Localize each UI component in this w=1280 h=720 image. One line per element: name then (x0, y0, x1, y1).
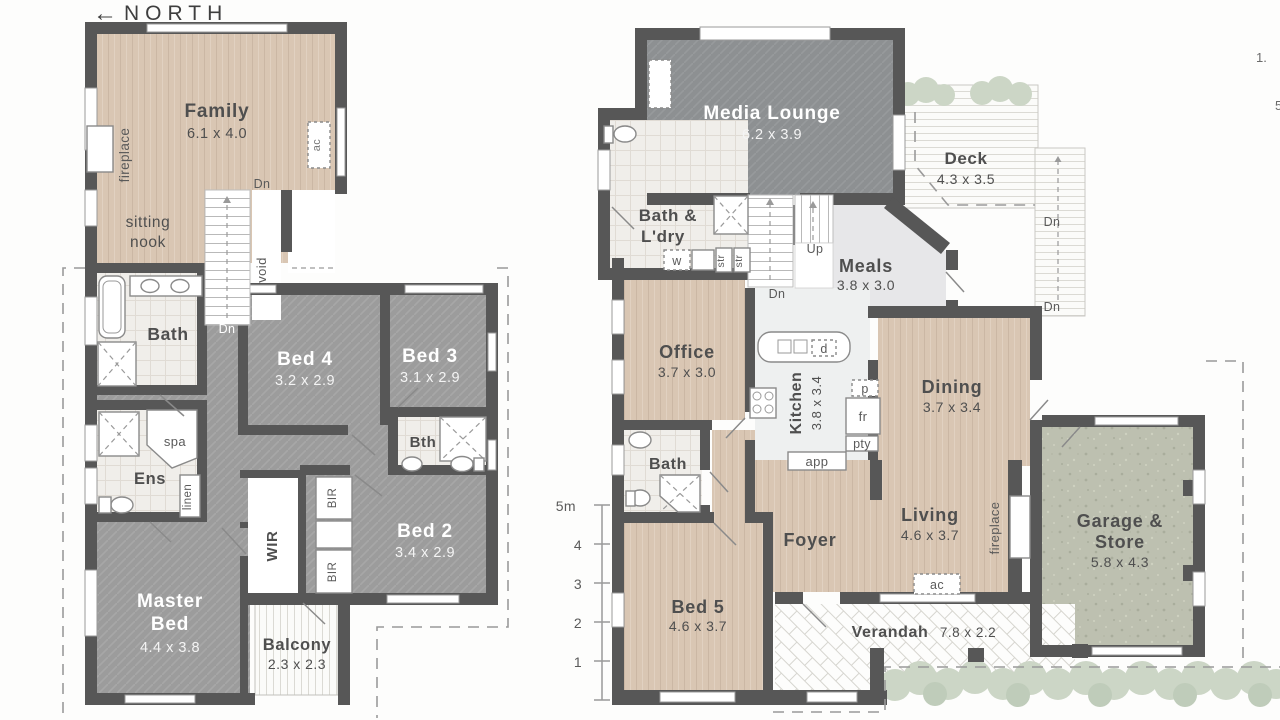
north-label: NORTH (124, 2, 228, 25)
label-dishwasher: d (820, 342, 827, 356)
margin-note-1: 1. (1256, 50, 1267, 65)
label-ac-upper: ac (311, 139, 323, 152)
room-dims-meals: 3.8 x 3.0 (837, 277, 895, 293)
stairs-up (795, 195, 833, 243)
toilet-tank (604, 126, 613, 143)
room-label-bth: Bth (410, 434, 437, 451)
room-label-family: Family (185, 101, 250, 122)
label-bir-top: BIR (327, 488, 339, 508)
label-spa: spa (164, 434, 187, 449)
room-label-foyer: Foyer (783, 530, 836, 550)
label-dn-bottom: Dn (219, 322, 236, 336)
sink-icon (629, 432, 651, 448)
fireplace-ground (1010, 496, 1030, 558)
label-ac-living: ac (930, 578, 944, 592)
north-arrow-icon: ← (93, 0, 117, 27)
room-dims-master: 4.4 x 3.8 (140, 640, 200, 656)
label-void: void (254, 257, 269, 282)
label-fireplace-ground: fireplace (987, 502, 1002, 555)
room-label-bed4: Bed 4 (277, 349, 333, 370)
north-indicator: ← NORTH (93, 0, 228, 27)
toilet-tank (99, 497, 111, 513)
room-label-master-1: Master (137, 591, 203, 612)
label-str-2: str (733, 254, 745, 267)
label-washer: w (671, 254, 682, 268)
room-label-meals: Meals (839, 256, 893, 276)
room-label-bed5: Bed 5 (671, 597, 724, 617)
room-dims-office: 3.7 x 3.0 (658, 364, 716, 380)
room-label-office: Office (659, 342, 715, 362)
sink-icon (402, 457, 422, 471)
room-label-media: Media Lounge (703, 103, 840, 124)
room-label-deck: Deck (944, 149, 987, 168)
sink-icon (141, 280, 159, 293)
cooktop-icon (750, 388, 776, 418)
built-in-robe (316, 521, 352, 548)
label-fireplace-upper: fireplace (117, 128, 132, 183)
toilet-tank (626, 491, 635, 506)
room-dims-verandah: 7.8 x 2.2 (940, 625, 996, 640)
scale-tick-3: 3 (574, 576, 582, 592)
label-wir: WIR (264, 531, 281, 562)
label-dn-ground: Dn (769, 287, 786, 301)
room-dims-kitchen: 3.8 x 3.4 (809, 376, 824, 430)
scale-tick-4: 4 (574, 537, 582, 553)
toilet-icon (451, 457, 473, 472)
room-label-garage-2: Store (1095, 532, 1145, 552)
label-bir-bottom: BIR (327, 562, 339, 582)
room-dims-bed4: 3.2 x 2.9 (275, 373, 335, 389)
room-dims-balcony: 2.3 x 2.3 (268, 656, 326, 672)
room-label-bath-ground: Bath (649, 456, 687, 473)
scale-label-5m: 5m (556, 498, 576, 514)
room-dims-deck: 4.3 x 3.5 (937, 171, 995, 187)
room-label-living: Living (901, 505, 959, 525)
toilet-tank (474, 458, 484, 471)
room-label-master-2: Bed (151, 614, 189, 635)
room-dims-media: 6.2 x 3.9 (742, 127, 802, 143)
label-pantry: pty (853, 437, 871, 451)
room-dims-bed2: 3.4 x 2.9 (395, 545, 455, 561)
room-label-garage-1: Garage & (1077, 511, 1163, 531)
label-sitting-nook-2: nook (130, 234, 166, 251)
label-appliances: app (806, 454, 829, 469)
label-sitting-nook-1: sitting (126, 214, 171, 231)
margin-note-2: 5 (1275, 98, 1280, 113)
label-dn-top: Dn (254, 177, 271, 191)
room-dims-bed3: 3.1 x 2.9 (400, 370, 460, 386)
floorplan-page: Family 6.1 x 4.0 fireplace sitting nook … (0, 0, 1280, 720)
label-up: Up (807, 242, 824, 256)
room-dims-dining: 3.7 x 3.4 (923, 399, 981, 415)
shower-icon (714, 196, 748, 234)
room-label-balcony: Balcony (263, 636, 332, 654)
room-label-kitchen: Kitchen (788, 372, 805, 435)
tub-box (692, 250, 714, 270)
label-fridge: fr (859, 409, 868, 424)
shower-icon (660, 475, 700, 512)
floorplan-drawing: Family 6.1 x 4.0 fireplace sitting nook … (0, 0, 1280, 720)
room-dims-garage: 5.8 x 4.3 (1091, 554, 1149, 570)
shower-icon (99, 412, 139, 456)
toilet-icon (614, 126, 636, 142)
fireplace-upper (87, 126, 113, 172)
label-deck-dn-2: Dn (1044, 300, 1061, 314)
room-label-bath-ldry-2: L'dry (641, 227, 685, 246)
shower-icon (98, 342, 136, 386)
room-label-bath-upper: Bath (147, 324, 188, 344)
sink-icon (171, 280, 189, 293)
label-linen: linen (182, 484, 194, 510)
label-pantry-p: p (861, 382, 868, 396)
room-label-bed3: Bed 3 (402, 346, 458, 367)
scale-tick-2: 2 (574, 615, 582, 631)
room-dims-bed5: 4.6 x 3.7 (669, 618, 727, 634)
room-label-dining: Dining (922, 377, 983, 397)
room-label-ens: Ens (134, 470, 166, 488)
room-dims-living: 4.6 x 3.7 (901, 527, 959, 543)
label-ac-media: ac (652, 79, 664, 92)
label-str-1: str (715, 254, 727, 267)
scale-tick-1: 1 (574, 654, 582, 670)
room-label-bath-ldry-1: Bath & (639, 206, 697, 225)
shower-icon (440, 417, 486, 461)
room-label-verandah: Verandah (852, 624, 929, 641)
toilet-icon (111, 497, 133, 513)
room-dims-family: 6.1 x 4.0 (187, 126, 247, 142)
label-deck-dn-1: Dn (1044, 215, 1061, 229)
room-label-bed2: Bed 2 (397, 521, 453, 542)
